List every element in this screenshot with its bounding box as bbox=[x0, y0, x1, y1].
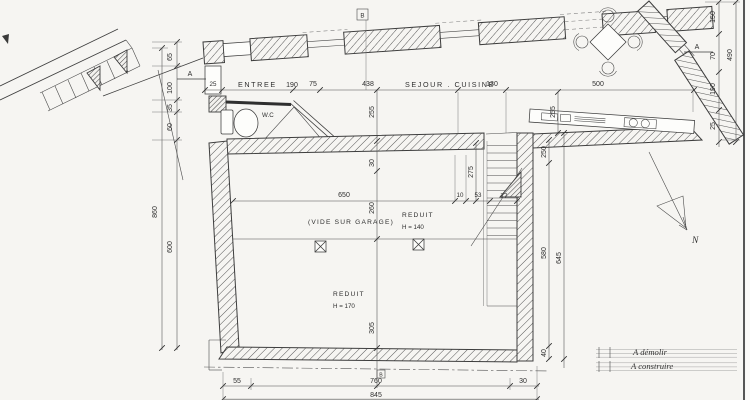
dim-label: 10 bbox=[457, 192, 464, 199]
bottom-wall bbox=[219, 347, 517, 362]
floor-plan-sheet: ENTREE SEJOUR . CUISINE W.C (VIDE SUR GA… bbox=[0, 0, 750, 400]
door-pier bbox=[209, 96, 226, 112]
dim-label: 255 bbox=[369, 106, 376, 118]
dim-label: 255 bbox=[550, 106, 557, 118]
dim-label: 190 bbox=[710, 83, 717, 95]
toilet-bowl bbox=[234, 109, 258, 137]
dim-label: 60 bbox=[167, 123, 174, 131]
dim-label: 190 bbox=[286, 82, 298, 89]
section-b-label: B bbox=[360, 13, 364, 20]
dim-label: 100 bbox=[167, 82, 174, 94]
dim-label: 150 bbox=[710, 11, 717, 23]
dim-label: 55 bbox=[233, 378, 241, 385]
dim-label: 70 bbox=[710, 52, 717, 60]
dim-label: 845 bbox=[370, 392, 382, 399]
room-label-sejour-cuisine: SEJOUR . CUISINE bbox=[405, 80, 495, 89]
dim-label: 65 bbox=[167, 53, 174, 61]
dim-label: 25 bbox=[710, 122, 717, 130]
room-height-reduit-lower: H = 170 bbox=[333, 303, 355, 310]
section-a-label: A bbox=[695, 44, 700, 51]
column-symbol bbox=[413, 239, 424, 250]
dim-label: 645 bbox=[556, 252, 563, 264]
dim-label: 760 bbox=[370, 378, 382, 385]
dim-label: 438 bbox=[362, 81, 374, 88]
dim-label: 260 bbox=[369, 202, 376, 214]
dim-label: 600 bbox=[167, 241, 174, 253]
room-label-reduit-upper: REDUIT bbox=[402, 212, 434, 219]
dim-label: 30 bbox=[369, 159, 376, 167]
dim-label: 650 bbox=[338, 192, 350, 199]
legend-demolish: A démolir bbox=[632, 347, 668, 357]
toilet-tank bbox=[221, 110, 233, 134]
room-height-reduit-upper: H = 140 bbox=[402, 224, 424, 231]
room-label-reduit-lower: REDUIT bbox=[333, 291, 365, 298]
dim-label: 25 bbox=[210, 81, 217, 88]
room-label-wc: W.C bbox=[262, 112, 274, 119]
dim-label: 75 bbox=[309, 81, 317, 88]
section-a-label: A bbox=[188, 71, 193, 78]
floor-plan-drawing: ENTREE SEJOUR . CUISINE W.C (VIDE SUR GA… bbox=[0, 0, 750, 400]
dim-label: 860 bbox=[152, 206, 159, 218]
dim-label: 35 bbox=[167, 104, 174, 112]
dim-label: 53 bbox=[475, 192, 482, 199]
dim-label: 580 bbox=[541, 247, 548, 259]
sheet-margin bbox=[746, 0, 750, 400]
legend-build: A construire bbox=[630, 361, 673, 371]
section-b-label: B bbox=[379, 373, 383, 379]
dim-label: 250 bbox=[541, 146, 548, 158]
dim-label: 40 bbox=[541, 349, 548, 357]
paper bbox=[0, 0, 750, 400]
dim-label: 77 bbox=[501, 193, 508, 200]
window bbox=[223, 42, 251, 57]
dim-label: 305 bbox=[369, 322, 376, 334]
dim-label: 500 bbox=[592, 81, 604, 88]
dim-label: 275 bbox=[468, 166, 475, 178]
room-label-entree: ENTREE bbox=[238, 80, 277, 89]
dim-label: 30 bbox=[519, 378, 527, 385]
dim-label: 490 bbox=[727, 49, 734, 61]
dim-label: 130 bbox=[486, 81, 498, 88]
room-label-vide-sur-garage: (VIDE SUR GARAGE) bbox=[308, 219, 394, 226]
stair-wall bbox=[517, 133, 533, 361]
north-label: N bbox=[691, 236, 699, 246]
column-symbol bbox=[315, 241, 326, 252]
